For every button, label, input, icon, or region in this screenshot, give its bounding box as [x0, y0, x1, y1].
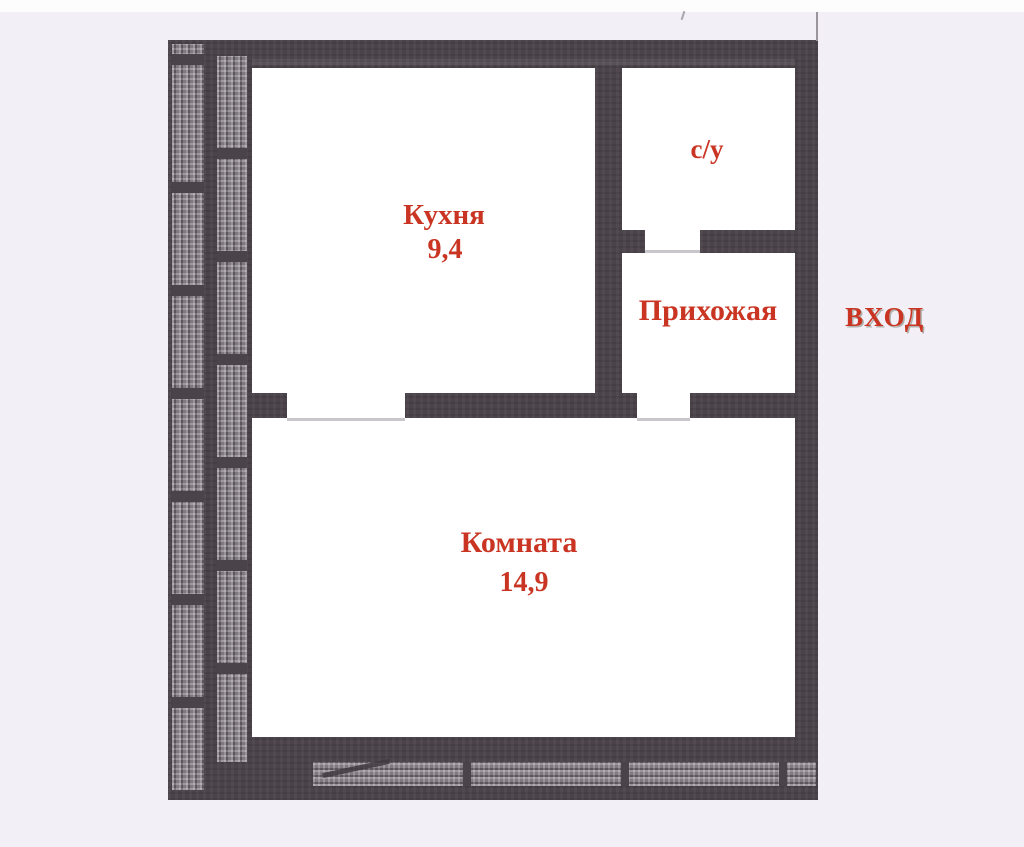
scan-line-top-right [816, 12, 818, 41]
door-opening-bathroom [645, 230, 700, 253]
left-wall-hatch-outer [172, 44, 204, 790]
kitchen-area: 9,4 [428, 236, 463, 264]
left-wall-hatch-inner [217, 56, 247, 762]
bathroom-label: с/у [691, 136, 724, 163]
door-opening-kitchen [287, 393, 405, 421]
scan-top-strip [0, 0, 1024, 12]
living-room-label: Комната [461, 528, 578, 558]
bottom-wall-hatch [313, 762, 816, 786]
scan-tick-mark [681, 11, 686, 20]
living-room-area: 14,9 [500, 569, 549, 597]
top-wall-highlight [252, 59, 795, 65]
kitchen-label: Кухня [403, 201, 485, 230]
floor-plan: Кухня 9,4 с/у Прихожая Комната 14,9 ВХОД [0, 0, 1024, 847]
entrance-label: ВХОД [845, 304, 925, 331]
door-opening-hallway [637, 393, 690, 421]
hallway-label: Прихожая [639, 296, 777, 326]
